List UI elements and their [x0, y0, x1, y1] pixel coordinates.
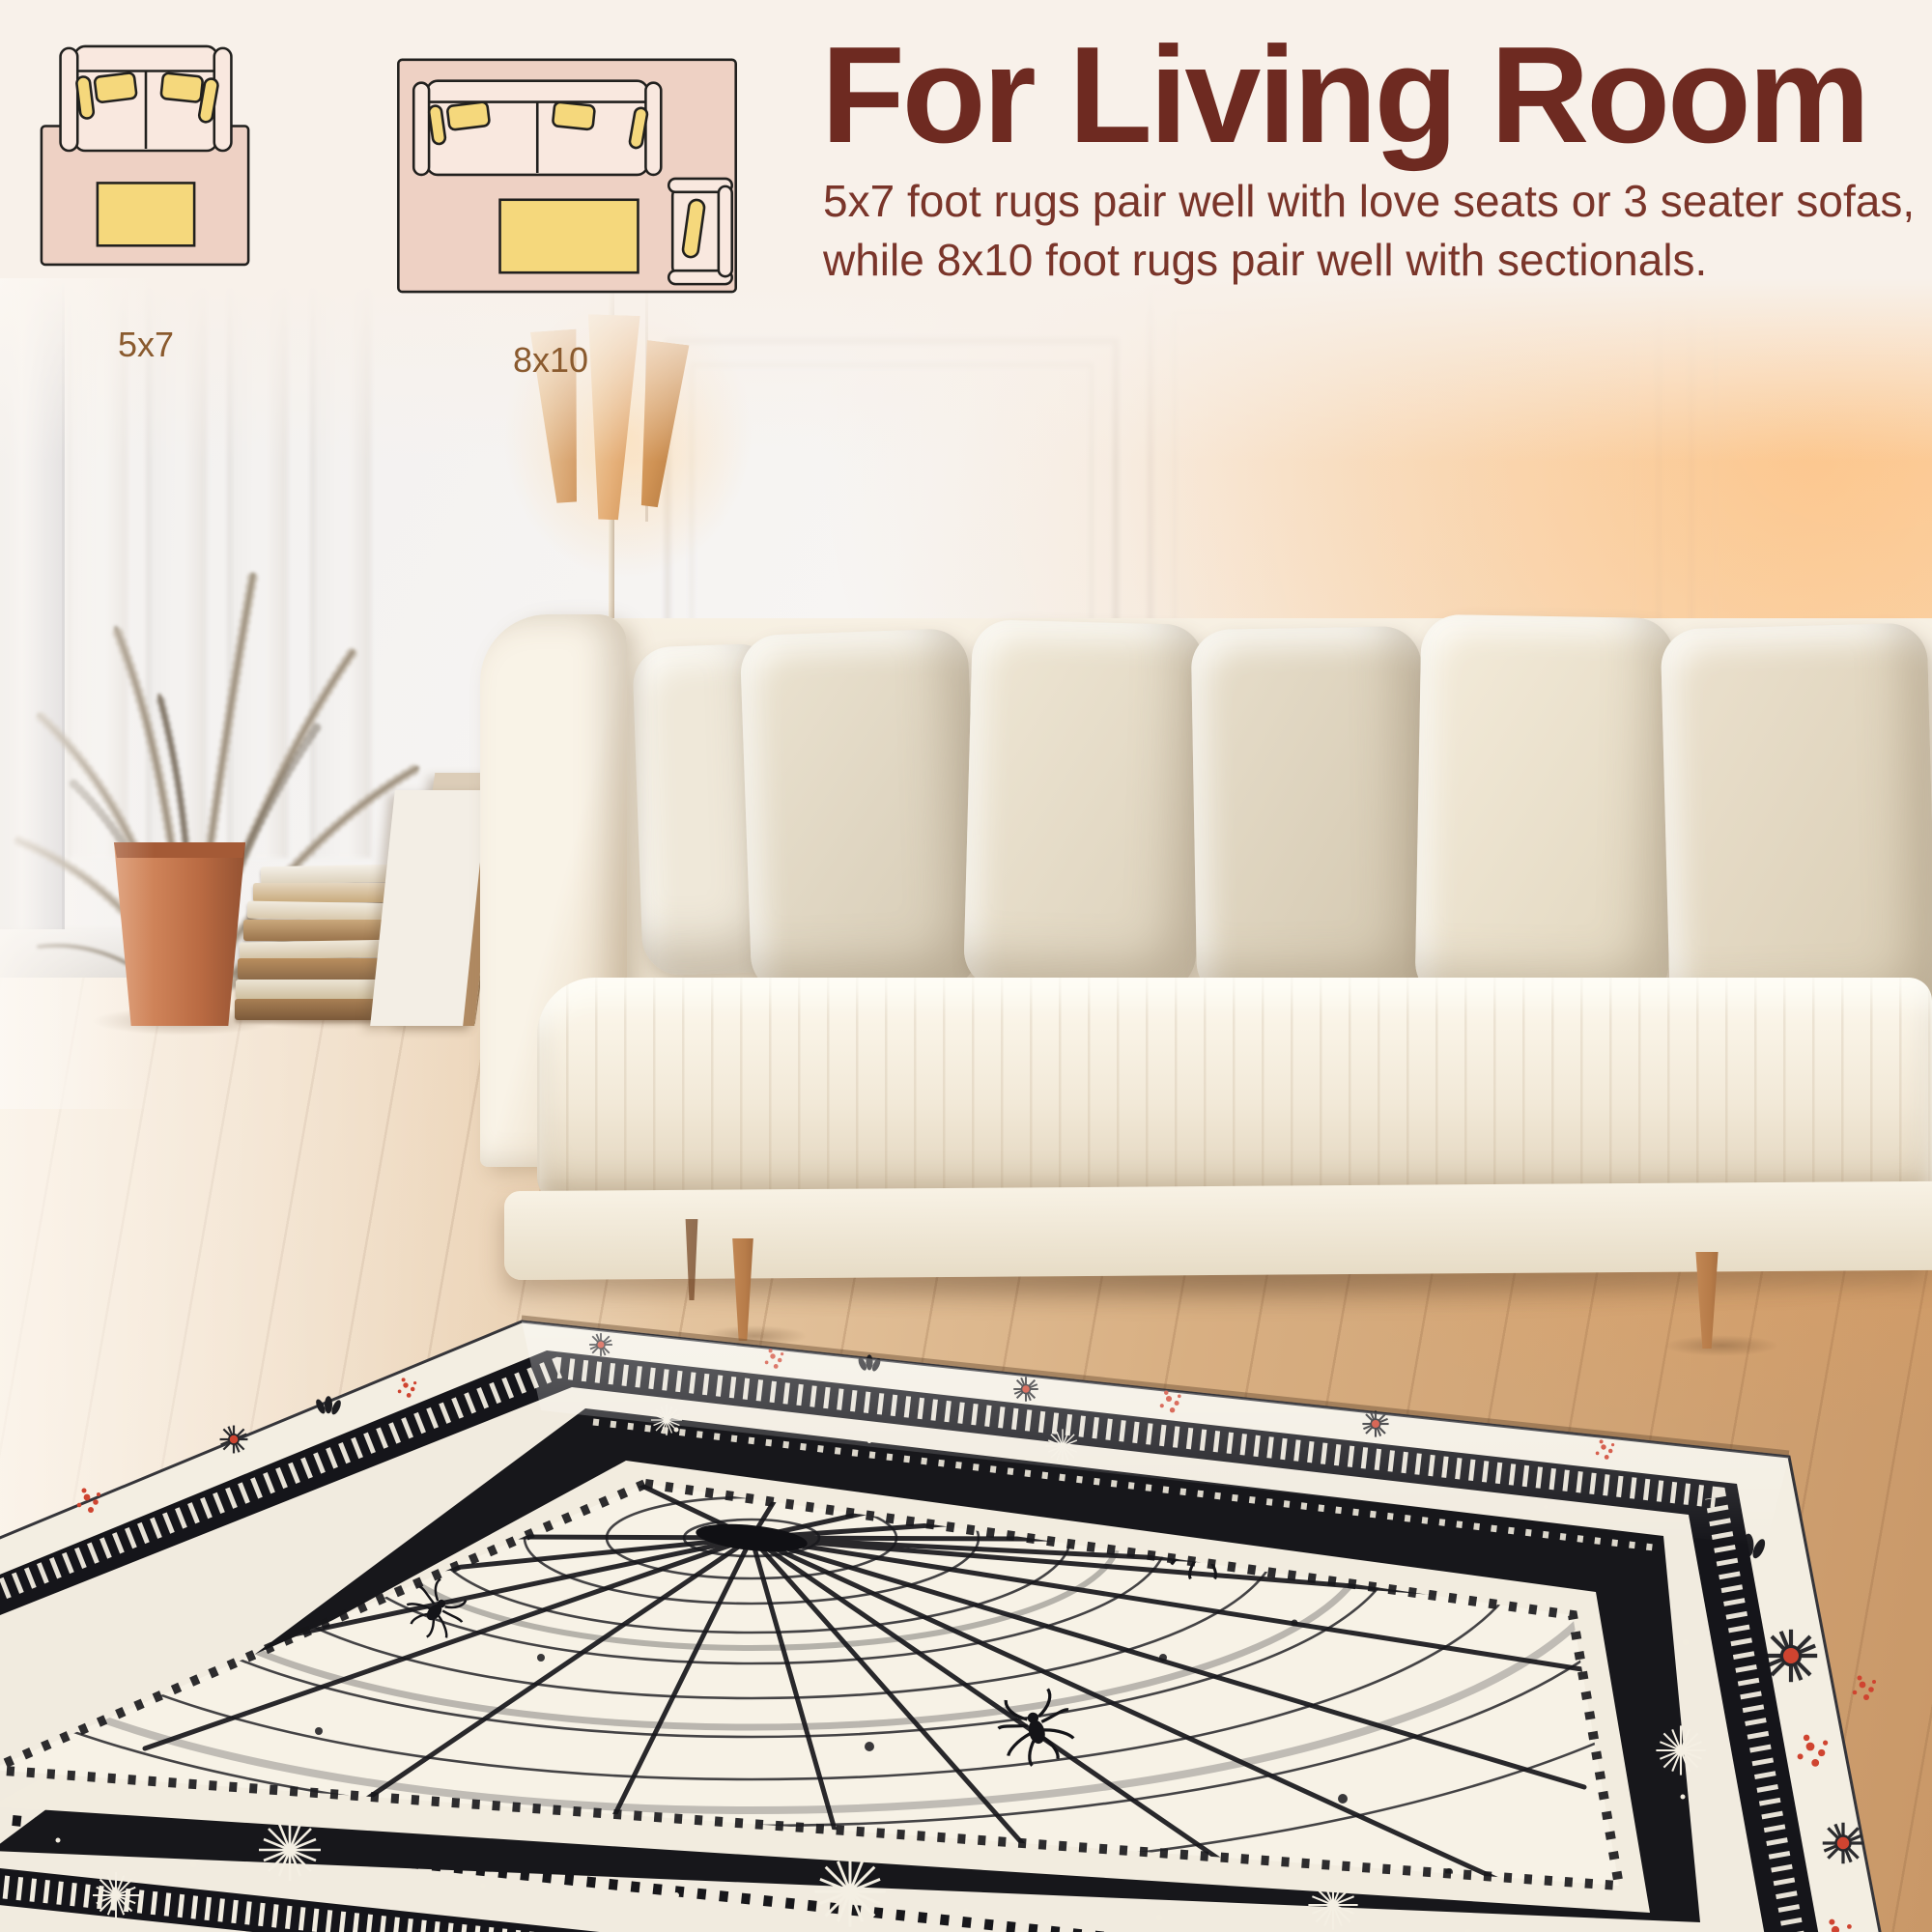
sofa-top-view-icon	[413, 81, 661, 175]
sofa-pillow	[1191, 626, 1428, 1001]
book	[247, 901, 402, 922]
sofa-top-view-icon	[61, 46, 232, 151]
spiderweb-rug	[0, 1256, 1932, 1932]
diagram-label-8x10: 8x10	[406, 340, 696, 381]
sofa-pillow	[1415, 614, 1675, 1006]
book	[253, 883, 400, 902]
book	[261, 865, 396, 884]
product-infographic: 5x7	[0, 0, 1932, 1932]
sofa-seat-cushion	[537, 978, 1932, 1206]
coffee-table-icon	[500, 200, 639, 272]
left-light-fade	[0, 278, 155, 1109]
rug-size-diagram-5x7	[37, 33, 255, 270]
coffee-table-icon	[98, 183, 194, 245]
page-description: 5x7 foot rugs pair well with love seats …	[823, 172, 1932, 289]
sofa-pillow	[1661, 622, 1932, 1025]
armchair-top-view-icon	[668, 179, 732, 284]
diagram-label-5x7: 5x7	[37, 325, 255, 365]
sofa-pillow	[740, 628, 980, 995]
rug-size-diagram-8x10	[392, 41, 748, 298]
sofa-pillow	[963, 619, 1205, 994]
page-title: For Living Room	[821, 27, 1913, 164]
header-photo-fade	[0, 278, 1932, 462]
